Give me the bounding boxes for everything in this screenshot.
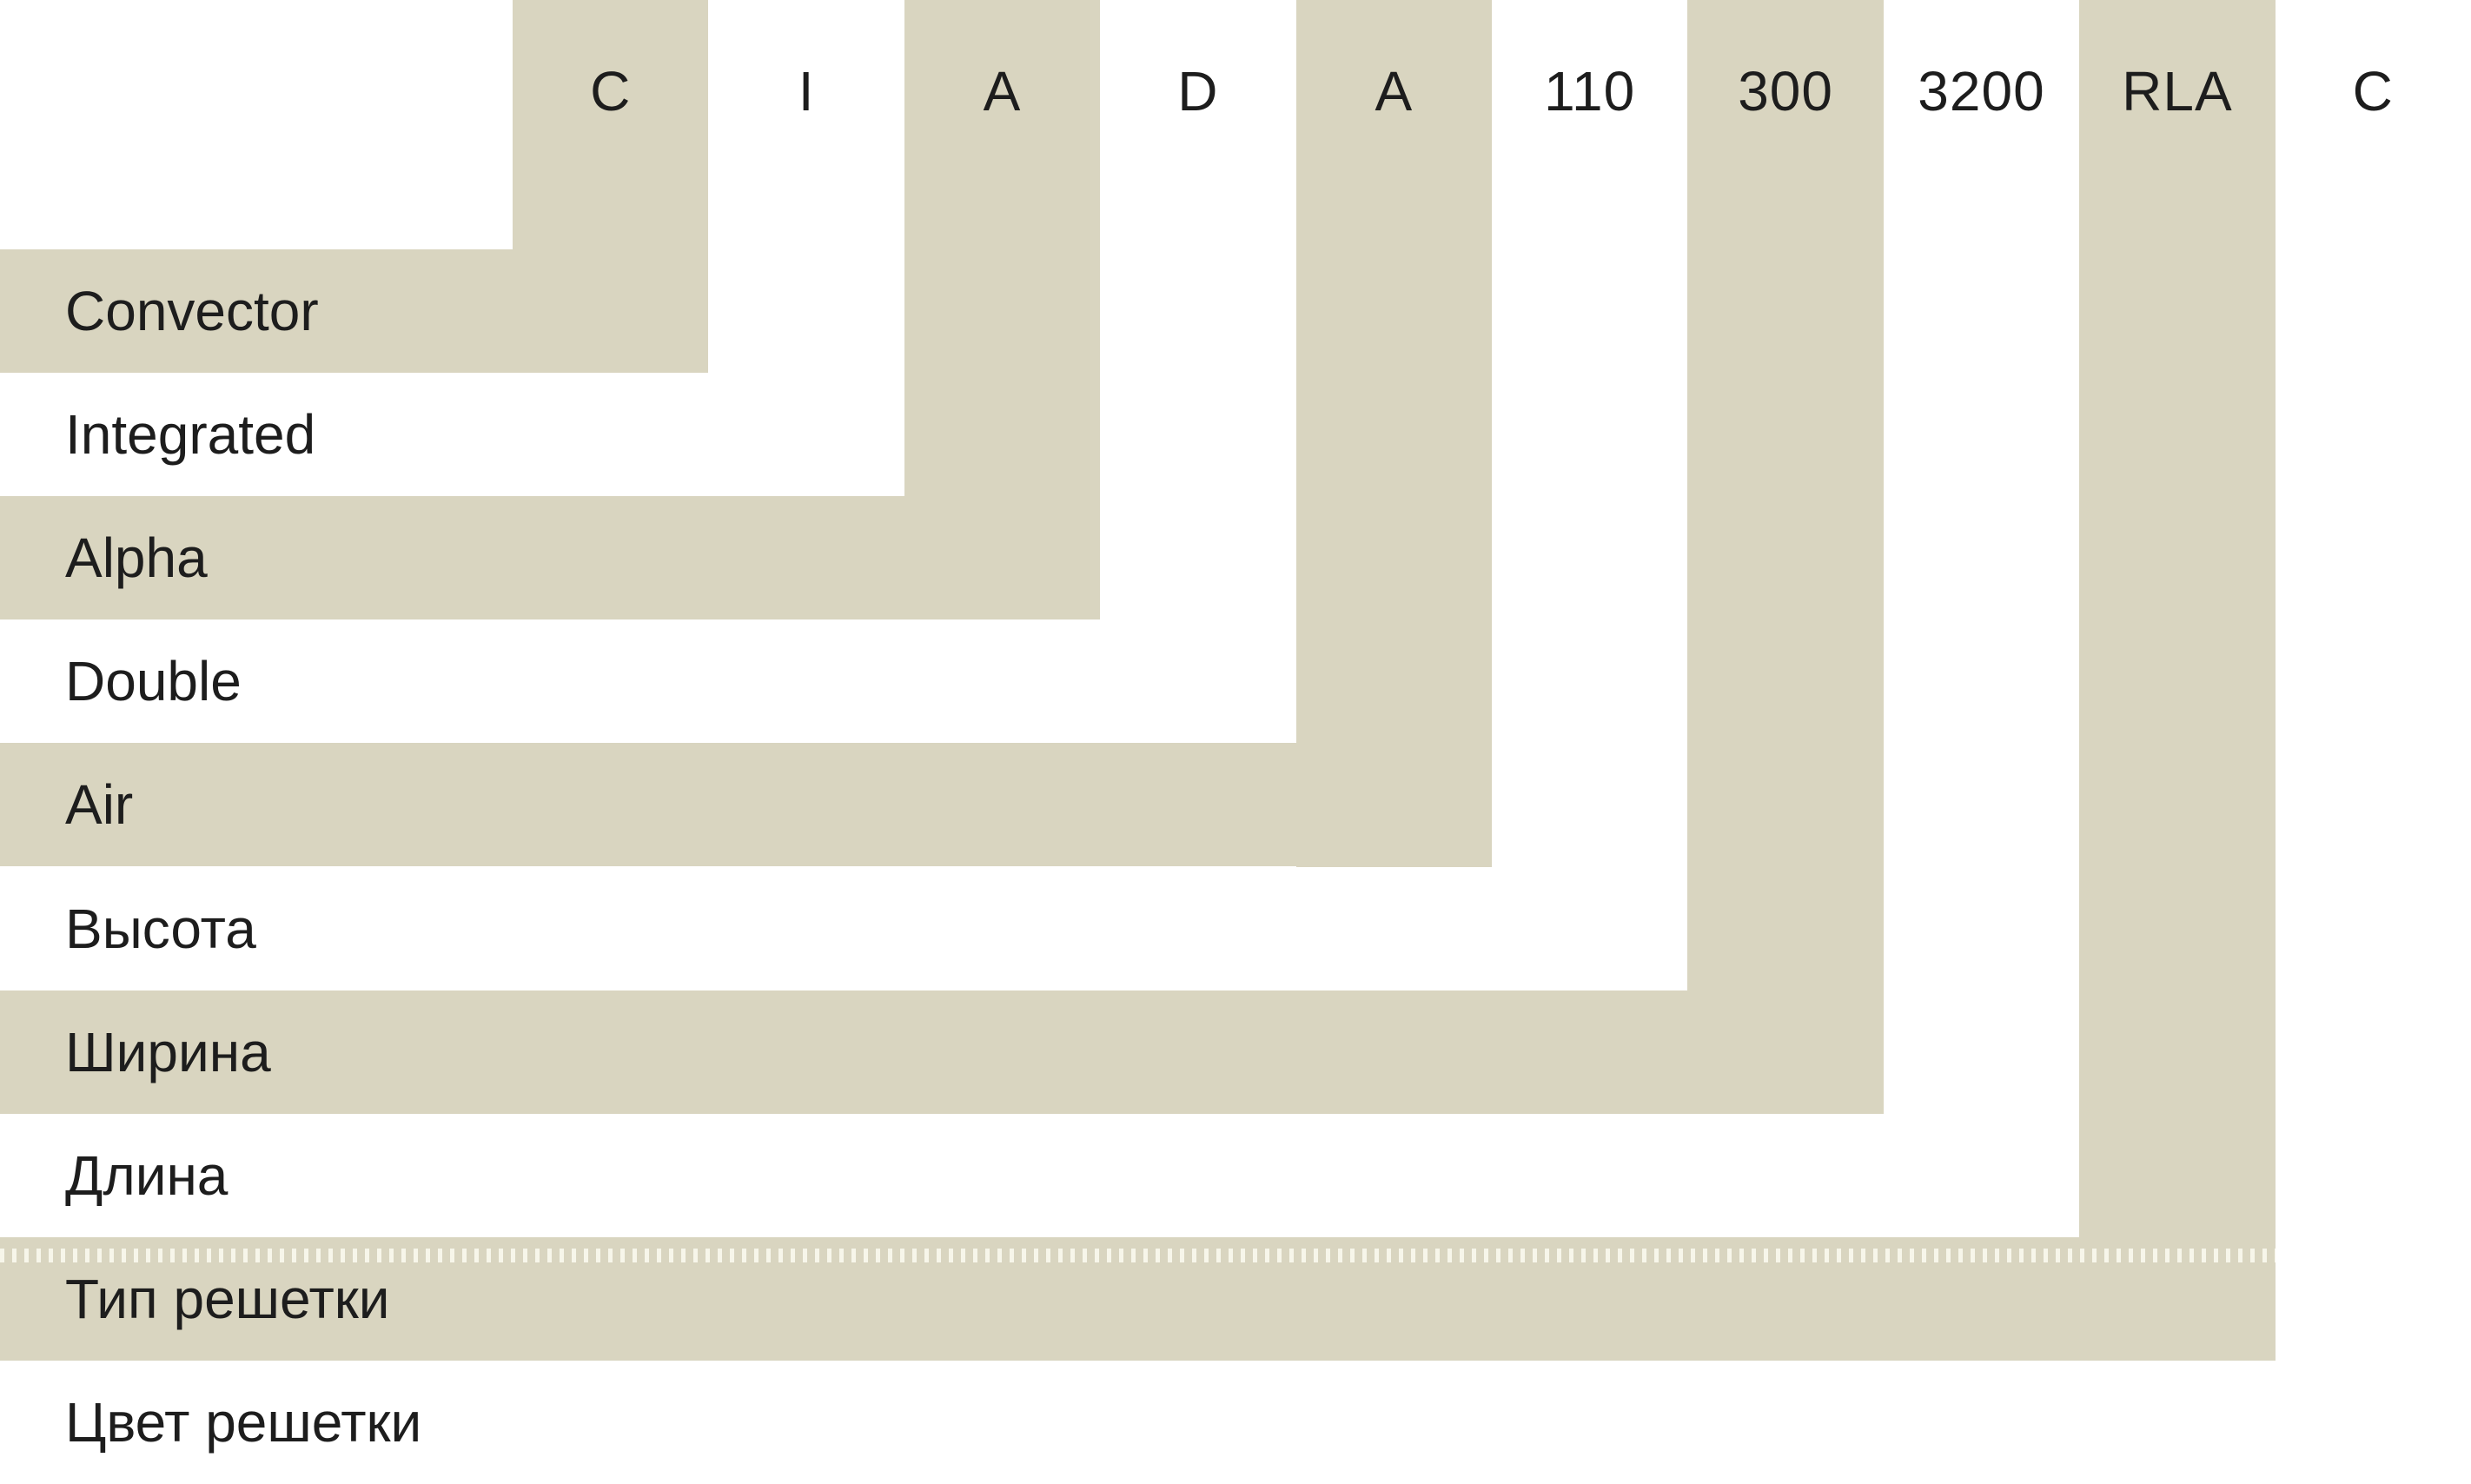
code-label-3: D: [1100, 0, 1295, 182]
code-label-9: C: [2276, 0, 2471, 182]
code-column-8: [2079, 0, 2275, 1361]
row-band-7: [0, 1114, 2079, 1237]
code-label-5: 110: [1492, 0, 1687, 182]
row-label-5: Высота: [0, 867, 256, 990]
code-column-9: [2276, 0, 2471, 1484]
row-label-3: Double: [0, 619, 242, 743]
code-label-2: A: [904, 0, 1100, 182]
code-label-0: C: [513, 0, 708, 182]
nomenclature-diagram: CConvectorIIntegratedAAlphaDDoubleAAir11…: [0, 0, 2471, 1484]
row-label-2: Alpha: [0, 496, 208, 619]
code-label-4: A: [1296, 0, 1492, 182]
row-label-7: Длина: [0, 1114, 228, 1237]
row-label-6: Ширина: [0, 990, 271, 1114]
row-label-4: Air: [0, 743, 133, 866]
row-label-0: Convector: [0, 249, 319, 373]
row-band-4: [0, 743, 1492, 866]
code-label-6: 300: [1687, 0, 1883, 182]
code-label-7: 3200: [1884, 0, 2079, 182]
row-label-8: Тип решетки: [0, 1237, 390, 1361]
code-label-1: I: [708, 0, 904, 182]
row-band-6: [0, 990, 1884, 1114]
row-label-9: Цвет решетки: [0, 1361, 421, 1484]
code-label-8: RLA: [2079, 0, 2275, 182]
code-column-7: [1884, 0, 2079, 1237]
row-label-1: Integrated: [0, 373, 315, 496]
